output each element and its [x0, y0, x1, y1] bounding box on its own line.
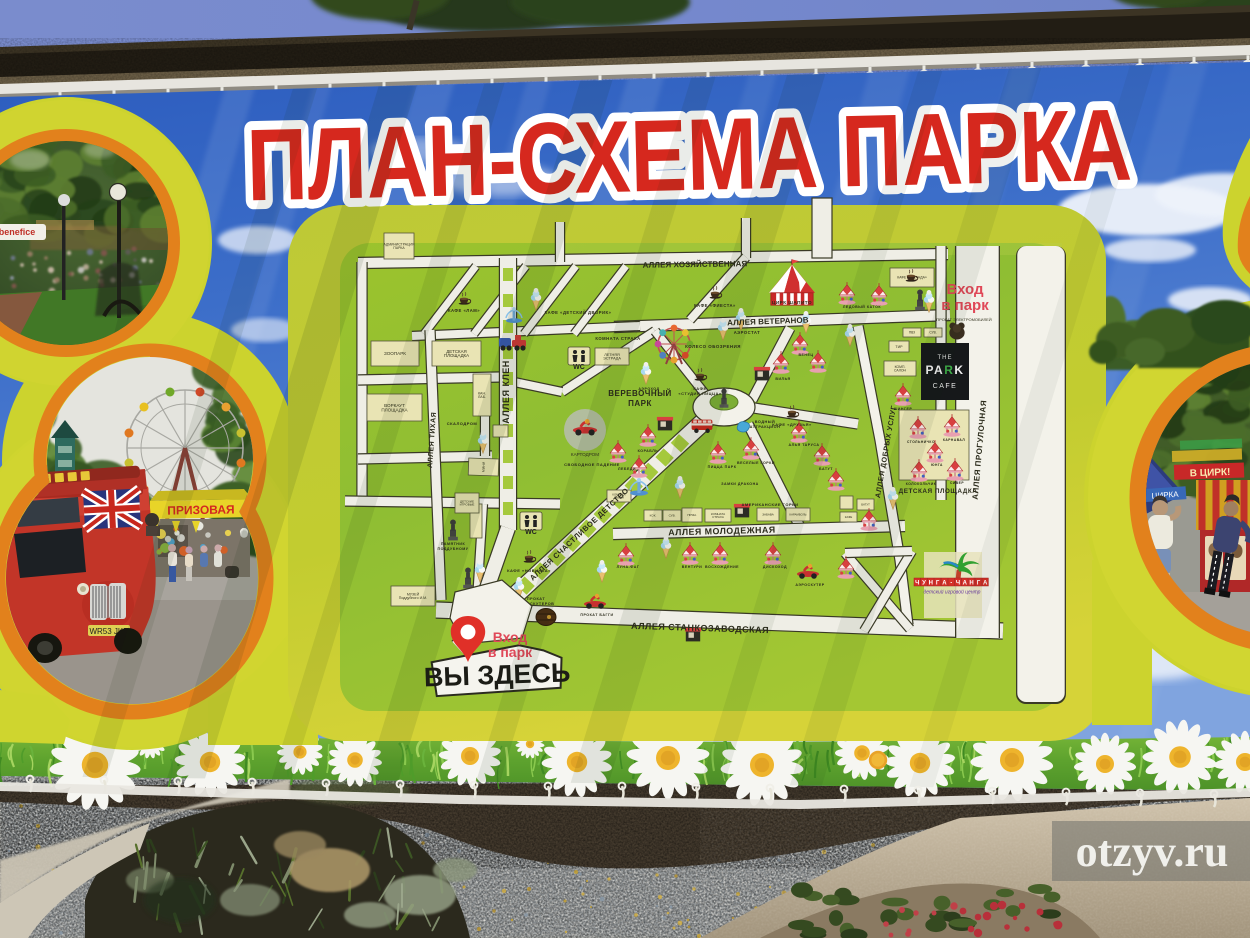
svg-text:СКАЛОДРОМ: СКАЛОДРОМ — [447, 421, 478, 426]
svg-text:КОРАБЛЬ: КОРАБЛЬ — [638, 449, 659, 453]
svg-text:Ч: Ч — [956, 581, 960, 587]
svg-text:Н: Н — [929, 581, 933, 587]
svg-text:ЛУНА-ФАГ: ЛУНА-ФАГ — [617, 565, 640, 569]
svg-text:Ч: Ч — [915, 581, 919, 587]
svg-text:БАТУТ: БАТУТ — [861, 503, 870, 507]
svg-text:У: У — [922, 581, 926, 587]
svg-text:АТТРАКЦИОН: АТТРАКЦИОН — [750, 425, 781, 429]
svg-text:КАФЕ: КАФЕ — [845, 515, 853, 519]
svg-text:ВОСХОЖДЕНИЕ: ВОСХОЖДЕНИЕ — [705, 565, 739, 569]
svg-text:АЭРОХОД: АЭРОХОД — [638, 387, 659, 391]
svg-text:ПВЗ: ПВЗ — [909, 331, 915, 335]
svg-text:benefice: benefice — [0, 227, 35, 237]
svg-text:ПИЦЦА ПАРК: ПИЦЦА ПАРК — [708, 465, 737, 469]
svg-text:БАТУТ: БАТУТ — [819, 467, 833, 471]
svg-text:ЮНГА: ЮНГА — [931, 463, 943, 467]
svg-text:-: - — [950, 581, 952, 587]
svg-text:ВЕНТУРИ: ВЕНТУРИ — [682, 565, 703, 569]
svg-text:ВЕНЕЦ: ВЕНЕЦ — [798, 353, 813, 357]
svg-text:КАФЕ «ДЕТСКИЙ ДВОРИК»: КАФЕ «ДЕТСКИЙ ДВОРИК» — [545, 310, 612, 315]
svg-text:ВЫ ЗДЕСЬ: ВЫ ЗДЕСЬ — [423, 657, 570, 692]
svg-text:КАРНАВАЛ: КАРНАВАЛ — [943, 438, 965, 442]
svg-text:ПРОКАТ БАГГИ: ПРОКАТ БАГГИ — [580, 613, 613, 617]
svg-text:ПАРК: ПАРК — [628, 399, 652, 408]
svg-text:СИВЕР: СИВЕР — [950, 481, 964, 485]
svg-text:otzyv.ru: otzyv.ru — [1076, 827, 1229, 876]
svg-text:А: А — [963, 581, 968, 587]
svg-text:В ЦИРК!: В ЦИРК! — [1190, 467, 1231, 479]
svg-text:А: А — [942, 581, 947, 587]
svg-text:ЛЕБЕДИ: ЛЕБЕДИ — [618, 467, 636, 471]
svg-text:ЗАБАВА: ЗАБАВА — [762, 513, 774, 517]
svg-text:ТИР: ТИР — [895, 345, 903, 349]
svg-text:АЭРОСКУТЕР: АЭРОСКУТЕР — [795, 583, 824, 587]
svg-text:ВОДНЫЙ: ВОДНЫЙ — [755, 420, 775, 424]
svg-text:КАФЕ «ЛАМ»: КАФЕ «ЛАМ» — [448, 308, 480, 313]
svg-text:ЦИРК ШАПИТО: ЦИРК ШАПИТО — [772, 300, 812, 305]
svg-text:САЛОН: САЛОН — [894, 368, 907, 372]
svg-text:ПАРКА: ПАРКА — [393, 246, 405, 250]
svg-text:ВЕСЕЛЫЕ ГОРКИ: ВЕСЕЛЫЕ ГОРКИ — [737, 461, 775, 465]
svg-text:Г: Г — [936, 581, 940, 587]
svg-text:СТРАХА: СТРАХА — [712, 515, 724, 519]
svg-text:ПЛОЩАДКА: ПЛОЩАДКА — [444, 353, 469, 358]
svg-text:ЗАМКИ ДРАКОНА: ЗАМКИ ДРАКОНА — [721, 482, 759, 486]
svg-text:ВИЛЬЯ: ВИЛЬЯ — [775, 377, 790, 381]
